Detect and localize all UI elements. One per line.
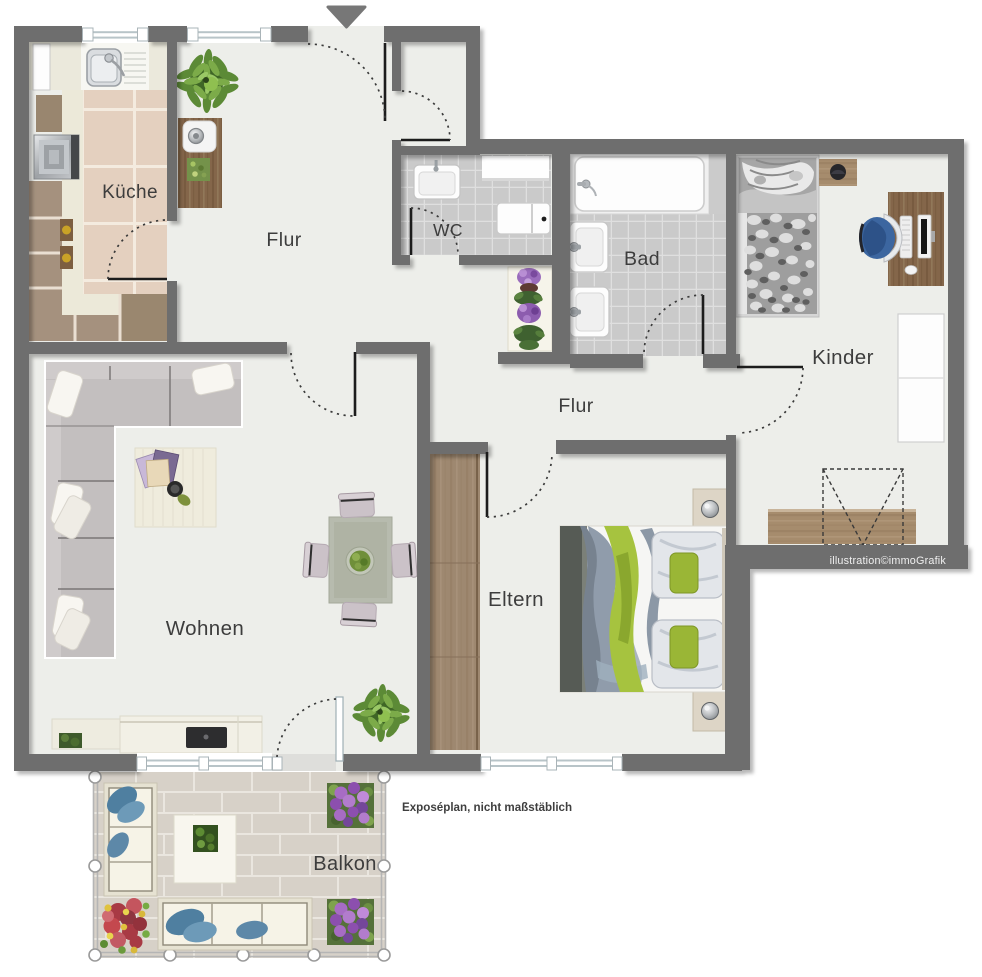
svg-text:Balkon: Balkon [313, 853, 377, 875]
svg-text:WC: WC [433, 220, 463, 240]
svg-text:Flur: Flur [266, 229, 301, 251]
svg-text:Kinder: Kinder [812, 346, 874, 369]
svg-text:Flur: Flur [558, 395, 593, 417]
svg-text:illustration©immoGrafik: illustration©immoGrafik [830, 555, 947, 567]
svg-text:Wohnen: Wohnen [166, 617, 244, 640]
svg-text:Exposéplan, nicht maßstäblich: Exposéplan, nicht maßstäblich [402, 801, 572, 814]
svg-text:Eltern: Eltern [488, 588, 544, 611]
svg-text:Bad: Bad [624, 248, 660, 270]
svg-text:Küche: Küche [102, 182, 158, 203]
